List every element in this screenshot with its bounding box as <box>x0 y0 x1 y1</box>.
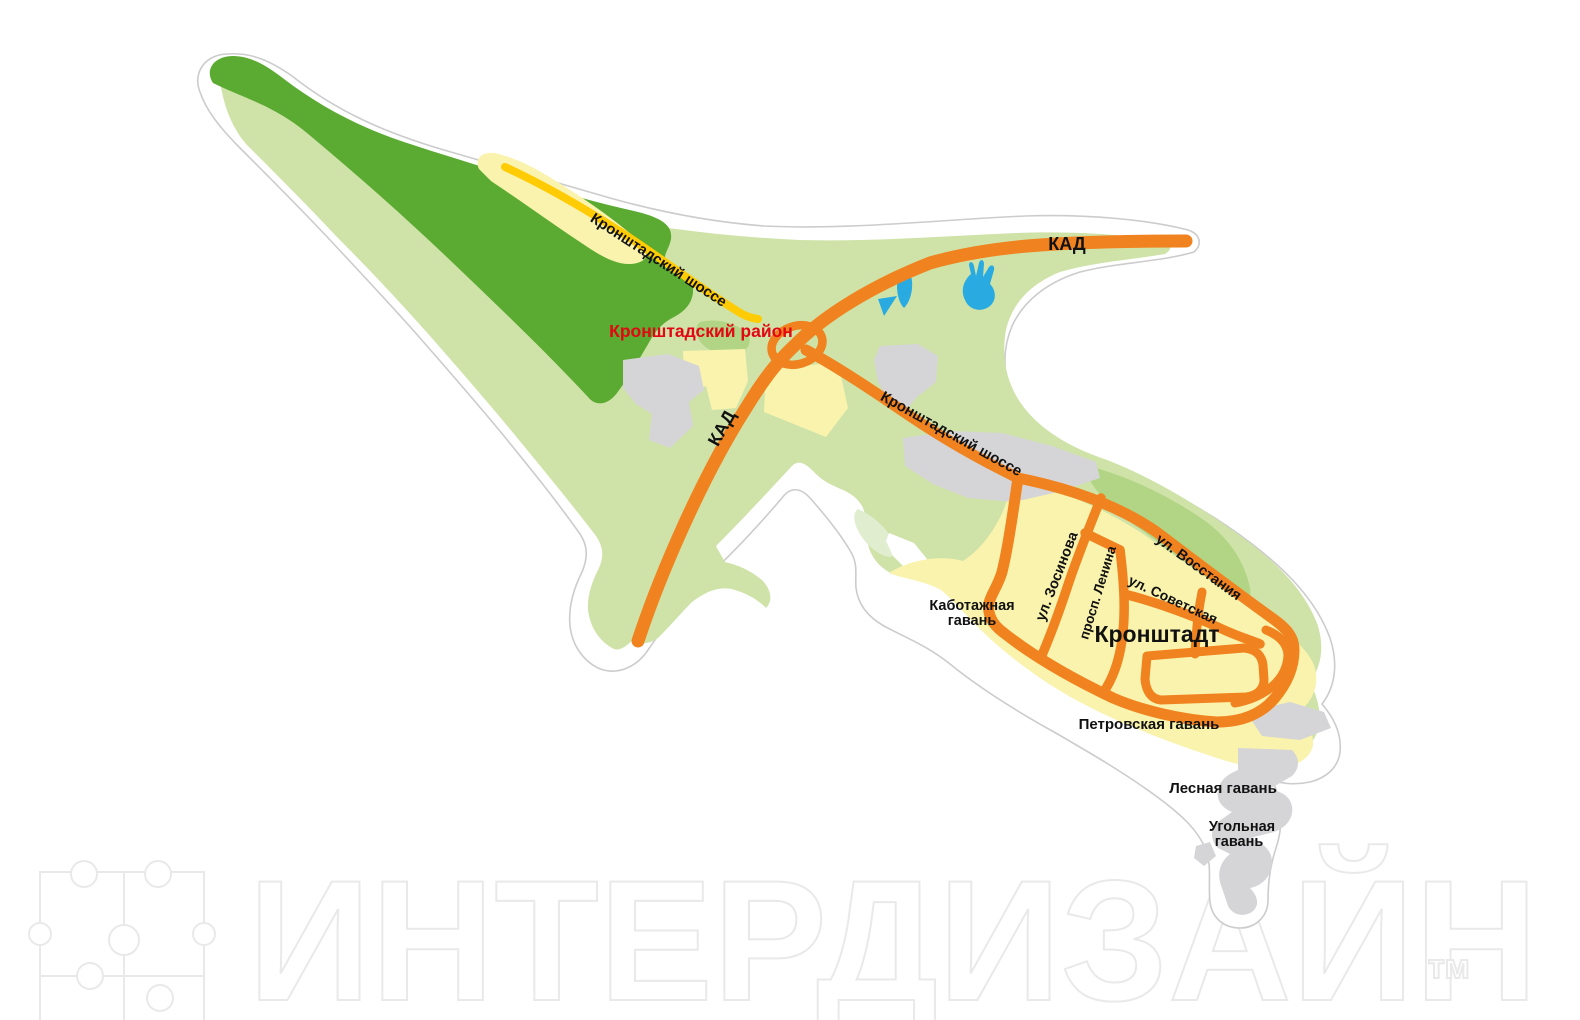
watermark: ИНТЕРДИЗАЙН тм <box>29 843 1538 1020</box>
label-harbor-kabotazhnaya-line1: Каботажная <box>929 598 1014 614</box>
watermark-tm: тм <box>1428 948 1470 986</box>
puzzle-knob-center-right <box>147 985 173 1011</box>
puzzle-knob-center-top <box>109 925 139 955</box>
puzzle-knob-center-left <box>77 963 103 989</box>
label-kad-north: КАД <box>1048 234 1086 254</box>
label-harbor-lesnaya: Лесная гавань <box>1169 780 1277 797</box>
puzzle-knob-left <box>29 923 51 945</box>
map-screenshot: ИНТЕРДИЗАЙН тм КАД КАД Кронштадс <box>0 0 1580 1020</box>
label-harbor-ugolnaya-line1: Угольная <box>1209 819 1275 835</box>
puzzle-knob-top-right <box>145 861 171 887</box>
kronstadt-district-map: ИНТЕРДИЗАЙН тм КАД КАД Кронштадс <box>0 0 1580 1020</box>
label-harbor-kabotazhnaya-line2: гавань <box>948 613 997 629</box>
label-district: Кронштадский район <box>609 321 793 341</box>
label-harbor-ugolnaya-line2: гавань <box>1215 834 1264 850</box>
puzzle-logo-icon <box>29 861 215 1020</box>
label-city: Кронштадт <box>1094 621 1219 647</box>
label-harbor-petrovskaya: Петровская гавань <box>1079 716 1220 733</box>
puzzle-knob-top-left <box>71 861 97 887</box>
watermark-text: ИНТЕРДИЗАЙН <box>248 843 1538 1020</box>
puzzle-knob-right <box>193 923 215 945</box>
